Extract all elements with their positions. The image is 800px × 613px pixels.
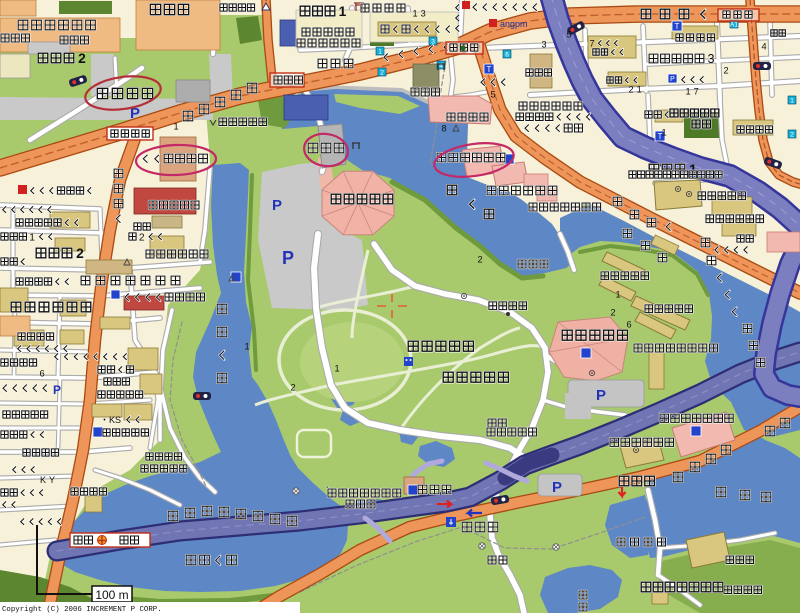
svg-text:Copyright (C) 2006 INCREMENT P: Copyright (C) 2006 INCREMENT P CORP. (2, 606, 162, 613)
svg-text:2: 2 (78, 51, 86, 66)
svg-text:5: 5 (566, 29, 571, 39)
svg-text:1: 1 (661, 127, 666, 137)
svg-text:2: 2 (628, 84, 633, 94)
svg-text:1: 1 (615, 289, 620, 299)
svg-text:4: 4 (761, 41, 766, 51)
svg-text:7: 7 (694, 86, 699, 96)
svg-text:P: P (272, 197, 282, 214)
svg-text:T: T (675, 22, 680, 31)
svg-text:1: 1 (790, 98, 794, 105)
svg-text:6: 6 (39, 368, 44, 378)
svg-text:angpm: angpm (500, 19, 528, 29)
svg-text:1: 1 (637, 84, 642, 94)
svg-text:2: 2 (380, 70, 384, 77)
svg-text:3: 3 (707, 52, 714, 66)
svg-text:2: 2 (723, 65, 728, 75)
svg-text:1: 1 (29, 232, 35, 243)
svg-text:P: P (596, 387, 606, 404)
svg-text:7: 7 (589, 38, 594, 48)
svg-text:1: 1 (412, 8, 417, 18)
svg-text:5: 5 (490, 89, 495, 99)
svg-text:3: 3 (421, 8, 426, 18)
svg-text:P: P (670, 76, 675, 83)
svg-text:2: 2 (76, 246, 84, 261)
svg-text:3: 3 (431, 39, 435, 46)
svg-text:・KS: ・KS (100, 415, 121, 425)
svg-text:P: P (282, 248, 294, 268)
svg-text:2: 2 (610, 307, 615, 317)
svg-text:6: 6 (505, 52, 509, 59)
svg-text:6: 6 (626, 319, 631, 329)
svg-text:1: 1 (244, 341, 249, 351)
svg-text:100 m: 100 m (95, 588, 128, 602)
svg-text:2: 2 (290, 382, 295, 392)
svg-text:1: 1 (685, 86, 690, 96)
svg-text:2: 2 (139, 232, 145, 243)
svg-text:3: 3 (541, 39, 546, 49)
svg-text:1: 1 (339, 4, 347, 19)
svg-text:KY: KY (40, 475, 58, 485)
svg-text:1: 1 (173, 121, 178, 131)
svg-text:1: 1 (378, 49, 382, 56)
svg-text:P: P (552, 479, 562, 496)
svg-text:P: P (53, 383, 61, 397)
svg-text:2: 2 (477, 254, 482, 264)
svg-text:8: 8 (441, 123, 446, 133)
svg-text:2: 2 (790, 132, 794, 139)
svg-text:T: T (487, 65, 492, 74)
svg-text:1: 1 (334, 363, 339, 373)
svg-text:A1: A1 (730, 22, 738, 29)
